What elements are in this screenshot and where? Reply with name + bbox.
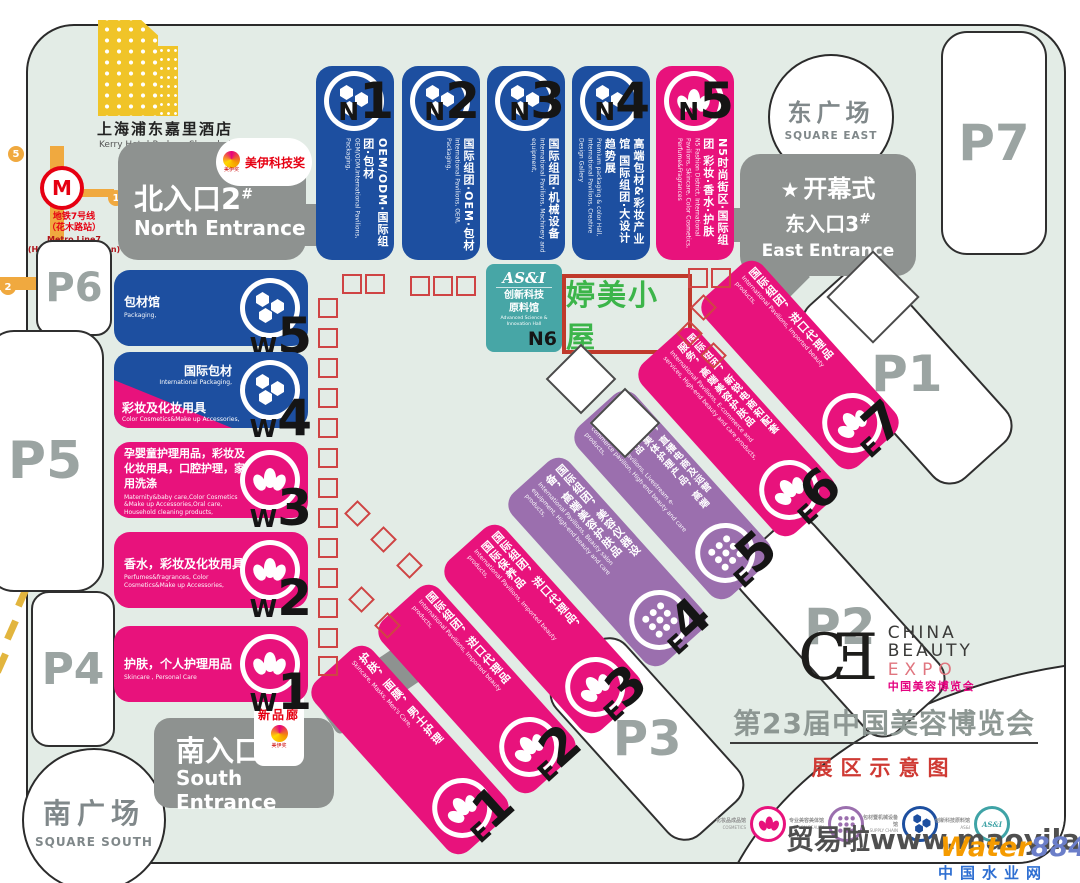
hall-w3-code: W3 (250, 489, 312, 528)
hall-n2-en: International Pavilions, OEM, Packaging, (443, 138, 460, 254)
deco-square (318, 656, 338, 676)
hall-w2: 香水，彩妆及化妆用具Perfumes&fragrances, Color Cos… (114, 532, 308, 608)
hall-w4-letter: W (250, 419, 278, 439)
hall-w4-num: 4 (277, 399, 312, 438)
hall-w1-num: 1 (277, 673, 312, 712)
hall-n6-code: N6 (528, 328, 557, 350)
cbe-line-beauty: BEAUTY (888, 642, 976, 660)
opening-ceremony-label: ★开幕式 (781, 169, 876, 204)
hall-w4-code: W4 (250, 399, 312, 438)
hall-w2-letter: W (250, 599, 278, 619)
deco-square (318, 538, 338, 558)
north-entrance-sup: # (241, 186, 253, 202)
hall-w5: 包材馆Packaging, W5 (114, 270, 308, 346)
hall-n6-cn1: 创新科技 (486, 290, 562, 303)
hall-n4-letter: N (594, 102, 615, 122)
new-gallery-sub: 美伊奖 (271, 744, 286, 749)
deco-square (318, 298, 338, 318)
east-entrance-cn: 东入口3# (785, 208, 871, 237)
parking-p7: P7 (941, 31, 1047, 255)
hall-n4-cn: 高端包材&彩妆产业馆 国际组团·大设计趋势展 (602, 138, 645, 254)
watermark-8848: 8848 (1031, 832, 1080, 863)
north-entrance-cn-text: 北入口2 (134, 182, 241, 216)
parking-p5: P5 (0, 330, 104, 592)
hall-n3-letter: N (509, 102, 530, 122)
hall-w5-num: 5 (277, 317, 312, 356)
legend-cosmetics: 化妆品成品馆COSMETICS (708, 806, 786, 842)
tech-award-sub: 美伊奖 (223, 168, 240, 173)
hall-n2-letter: N (424, 102, 445, 122)
tech-award-badge: 美伊奖 美伊科技奖 (216, 138, 312, 186)
metro-line-5-badge: 5 (8, 146, 24, 162)
hall-n3-en: International Pavilions, Machinery and e… (528, 138, 545, 254)
deco-square (318, 598, 338, 618)
east-entrance: ★开幕式 东入口3# East Entrance (740, 154, 916, 276)
hall-w1: 护肤，个人护理用品Skincare , Personal Care W1 (114, 626, 308, 702)
asi-brand: AS&I (496, 269, 551, 288)
deco-square (433, 276, 453, 296)
cbe-monogram-e: Ǝ (833, 630, 880, 688)
south-entrance-en: South Entrance (176, 766, 334, 814)
hall-w4-en-top: International Packaging, (159, 379, 232, 386)
metro-station-cn: （花木路站） (14, 223, 134, 234)
hall-n5-letter: N (678, 102, 699, 122)
deco-square (688, 268, 708, 288)
square-south-en: SQUARE SOUTH (35, 835, 153, 849)
hall-n2-num: 2 (445, 82, 480, 121)
watermark-water-site: 中国水业网 (938, 862, 1048, 883)
title-divider (730, 742, 1038, 744)
square-south-cn: 南广场 (43, 792, 145, 832)
watermark-water8848: Water8848.com (940, 832, 1080, 863)
parking-p4-label: P4 (42, 644, 105, 695)
parking-p5-label: P5 (8, 431, 82, 491)
cbe-monogram: C Ǝ (798, 630, 880, 688)
square-east-cn: 东广场 (788, 93, 875, 128)
deco-square (318, 628, 338, 648)
hall-w3-en: Maternity&baby care,Color Cosmetics &Mak… (124, 494, 252, 517)
hall-n1-letter: N (338, 102, 359, 122)
star-icon: ★ (781, 178, 800, 202)
hall-w2-en: Perfumes&fragrances, Color Cosmetics&Mak… (124, 574, 244, 590)
hall-n2-code: N2 (424, 82, 480, 121)
east-entrance-sup: # (859, 211, 871, 227)
hall-n2: N2 国际组团·OEM·包材International Pavilions, O… (402, 66, 480, 260)
deco-square (318, 478, 338, 498)
hall-n3-cn: 国际组团·机械设备 (546, 138, 560, 254)
deco-square (318, 358, 338, 378)
deco-square (318, 328, 338, 348)
legend-cosmetics-en: COSMETICS (708, 825, 746, 830)
hall-w4-cn-top: 国际包材 (159, 362, 232, 379)
hall-w4: 国际包材International Packaging, 彩妆及化妆用具Colo… (114, 352, 308, 428)
hall-n6-en: Advanced Science & Innovation Hall (486, 316, 562, 328)
square-east-en: SQUARE EAST (785, 130, 878, 142)
hall-n5-cn: N5时尚街区·国际组团 彩妆·香水·护肤 (700, 138, 729, 254)
metro-line-cn: 地铁7号线 (14, 212, 134, 223)
hall-n2-cn: 国际组团·OEM·包材 (461, 138, 475, 254)
hall-w2-cn: 香水，彩妆及化妆用具 (124, 556, 244, 572)
deco-square (342, 274, 362, 294)
hall-w4-cn-bottom: 彩妆及化妆用具 (122, 399, 240, 416)
deco-square (318, 568, 338, 588)
hotel-annex-icon (158, 46, 178, 116)
legend-flower-logo-icon (750, 806, 786, 842)
hall-w1-cn: 护肤，个人护理用品 (124, 656, 232, 672)
hall-n3-num: 3 (530, 82, 565, 121)
hall-w1-letter: W (250, 693, 278, 713)
tech-award-label: 美伊科技奖 (245, 154, 305, 171)
meiyi-award-logo-icon (271, 725, 288, 742)
parking-p6: P6 (36, 240, 112, 336)
east-entrance-cn-text: 东入口3 (785, 212, 859, 236)
hall-n1-cn: OEM/ODM·国际组团·包材 (360, 138, 389, 254)
deco-square (410, 276, 430, 296)
hall-w4-en-bottom: Color Cosmetics&Make up Accessories, (122, 416, 240, 423)
cbe-line-cn: 中国美容博览会 (888, 681, 976, 693)
hall-w3-letter: W (250, 509, 278, 529)
hall-w3: 孕婴童护理用品，彩妆及化妆用具，口腔护理，家用洗涤Maternity&baby … (114, 442, 308, 518)
hall-n6-cn2: 原料馆 (486, 303, 562, 316)
hall-w2-code: W2 (250, 579, 312, 618)
hall-w5-en: Packaging, (124, 312, 160, 320)
deco-square (318, 448, 338, 468)
hall-n1-num: 1 (359, 82, 394, 121)
hall-n5-num: 5 (699, 82, 734, 121)
hall-n4-code: N4 (594, 82, 650, 121)
hall-w2-num: 2 (277, 579, 312, 618)
cbe-logo: C Ǝ CHINA BEAUTY EXPO 中国美容博览会 (798, 624, 975, 693)
hall-w3-num: 3 (277, 489, 312, 528)
hall-w1-en: Skincare , Personal Care (124, 674, 232, 682)
deco-square (711, 268, 731, 288)
hall-n1: N1 OEM/ODM·国际组团·包材OEM/ODM,International … (316, 66, 394, 260)
parking-p6-label: P6 (45, 265, 102, 311)
hall-n5-en: N5 Fashion District, International Pavil… (674, 138, 700, 254)
hall-w5-cn: 包材馆 (124, 294, 160, 310)
hall-n1-code: N1 (338, 82, 394, 121)
hall-w1-code: W1 (250, 673, 312, 712)
hall-n3: N3 国际组团·机械设备International Pavilions, Mac… (487, 66, 565, 260)
hall-n4: N4 高端包材&彩妆产业馆 国际组团·大设计趋势展Premium packagi… (572, 66, 650, 260)
hall-n4-num: 4 (615, 82, 650, 121)
hall-n4-en: Premium packaging & color Hall, Internat… (576, 138, 602, 254)
south-entrance: 南入口1# South Entrance (154, 718, 334, 808)
deco-square (318, 508, 338, 528)
deco-square (365, 274, 385, 294)
hall-w3-cn: 孕婴童护理用品，彩妆及化妆用具，口腔护理，家用洗涤 (124, 447, 252, 492)
deco-square (456, 276, 476, 296)
metro-dash (4, 619, 19, 640)
hall-w5-code: W5 (250, 317, 312, 356)
hall-n1-en: OEM/ODM,International Pavilions, Packagi… (343, 138, 360, 254)
watermark-water: Water (940, 832, 1031, 863)
hall-n6: AS&I 创新科技 原料馆 Advanced Science & Innovat… (486, 264, 562, 352)
hall-n5-code: N5 (678, 82, 734, 121)
parking-p7-label: P7 (958, 114, 1029, 172)
hall-n3-code: N3 (509, 82, 565, 121)
parking-p4: P4 (31, 591, 115, 747)
meiyi-award-logo-icon (223, 151, 240, 168)
hall-n5: N5 N5时尚街区·国际组团 彩妆·香水·护肤N5 Fashion Distri… (656, 66, 734, 260)
metro-logo-icon: M (40, 166, 84, 210)
square-south: 南广场 SQUARE SOUTH (22, 748, 166, 883)
metro-line-2-badge: 2 (0, 279, 16, 295)
opening-ceremony-text: 开幕式 (803, 175, 875, 203)
deco-square (318, 418, 338, 438)
cbe-line-china: CHINA (888, 624, 976, 642)
expo-title: 第23届中国美容博览会 (728, 702, 1040, 742)
north-entrance-en: North Entrance (134, 216, 306, 240)
metro-dash (0, 652, 9, 673)
hotel-name-cn: 上海浦东嘉里酒店 (50, 118, 280, 139)
map-subtitle: 展区示意图 (728, 752, 1040, 782)
cbe-line-expo: EXPO (888, 661, 976, 679)
deco-square (318, 388, 338, 408)
hotel-building-icon (98, 20, 158, 116)
